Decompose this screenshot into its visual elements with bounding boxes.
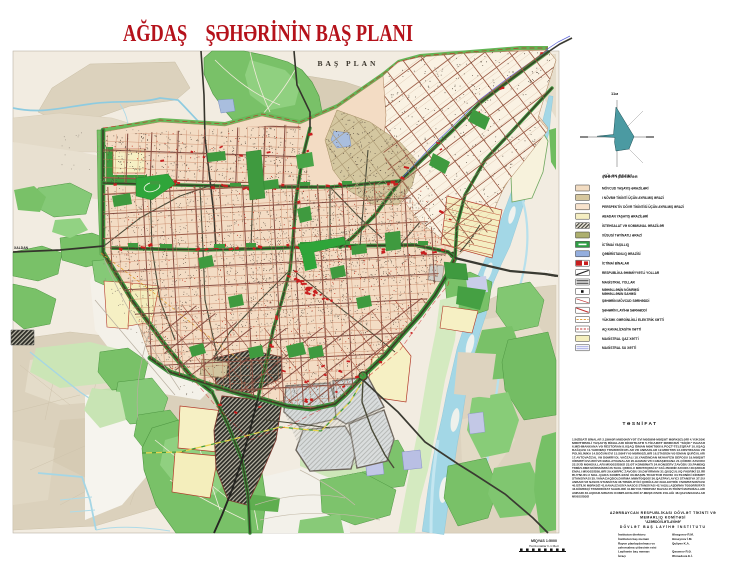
svg-text:QƏBİRİSTANLIQ ƏRAZİSİ: QƏBİRİSTANLIQ ƏRAZİSİ <box>602 252 641 256</box>
svg-text:Layihənin baş memarı: Layihənin baş memarı <box>618 550 650 554</box>
svg-text:ŞƏHƏRİN MÖVCUD SƏRHƏDDİ: ŞƏHƏRİN MÖVCUD SƏRHƏDDİ <box>602 298 649 303</box>
svg-text:MAGİSTRAL YOLLAR: MAGİSTRAL YOLLAR <box>602 280 636 284</box>
svg-text:Horizontallar h-1 Metr: Horizontallar h-1 Metr <box>529 544 559 548</box>
svg-text:AĞDAŞ ŞƏHƏRİNİN BAŞ PLANI: AĞDAŞ ŞƏHƏRİNİN BAŞ PLANI <box>123 20 413 47</box>
svg-text:MEMARLIQ KOMİTƏSİ: MEMARLIQ KOMİTƏSİ <box>640 516 686 520</box>
svg-text:Quliyev K.A.: Quliyev K.A. <box>672 542 690 546</box>
svg-text:Ələsgərov R.M.: Ələsgərov R.M. <box>672 533 694 537</box>
svg-text:MAGİSTRAL SU XƏTTİ: MAGİSTRAL SU XƏTTİ <box>602 346 636 350</box>
svg-text:ŞƏHƏRİN LAYİHƏ SƏRHƏDDİ: ŞƏHƏRİN LAYİHƏ SƏRHƏDDİ <box>602 309 647 313</box>
svg-text:İnstitutun baş memarı: İnstitutun baş memarı <box>618 536 649 541</box>
svg-text:MİQYAS 1:5000: MİQYAS 1:5000 <box>531 539 557 543</box>
svg-text:İCTİMAİ BİNALAR: İCTİMAİ BİNALAR <box>602 262 630 266</box>
svg-text:PERSPEKTİV DÖVR TİKİNTİSİ ÜÇÜN: PERSPEKTİV DÖVR TİKİNTİSİ ÜÇÜN AYRILMIŞ … <box>602 204 684 209</box>
svg-text:İcraçı: İcraçı <box>618 553 626 558</box>
svg-text:I NÖVBƏ TİKİNTİ ÜÇÜN AYRILMIŞ: I NÖVBƏ TİKİNTİ ÜÇÜN AYRILMIŞ ƏRAZİ <box>602 195 664 200</box>
svg-text:MAGİSTRAL QAZ XƏTTİ: MAGİSTRAL QAZ XƏTTİ <box>602 337 639 341</box>
svg-text:XÜSUSİ TƏYİNATLI ƏRAZİ: XÜSUSİ TƏYİNATLI ƏRAZİ <box>602 232 642 237</box>
svg-text:ŞƏRTİ İŞARƏLƏR: ŞƏRTİ İŞARƏLƏR <box>602 175 638 179</box>
svg-text:RESPUBLİKA ƏHƏMİYYƏTLİ YOLLAR: RESPUBLİKA ƏHƏMİYYƏTLİ YOLLAR <box>602 271 660 275</box>
svg-text:İnstitutun direktoru: İnstitutun direktoru <box>618 532 646 537</box>
svg-text:6.MEHMANXANA VƏ RESTORAN 8.UŞ: 6.MEHMANXANA VƏ RESTORAN 8.UŞAQ İDMAN MƏ… <box>572 445 706 449</box>
svg-text:AQ KANALİZASİYA XƏTTİ: AQ KANALİZASİYA XƏTTİ <box>602 327 641 331</box>
svg-text:MƏRTƏBƏLİ YAŞAYIŞ BİNALARI K: MƏRTƏBƏLİ YAŞAYIŞ BİNALARI KİNOTEATR 5.T… <box>572 441 705 445</box>
svg-text:Əhmədova E.İ.: Əhmədova E.İ. <box>672 553 693 558</box>
svg-text:BUYNUZLU MAL-QARA KOMPLEKSİ 3: BUYNUZLU MAL-QARA KOMPLEKSİ 33.MAŞIN-TRA… <box>572 473 705 477</box>
svg-text:"AZƏRDÖVLƏTLAYİHƏ": "AZƏRDÖVLƏTLAYİHƏ" <box>645 519 682 524</box>
svg-text:İSTEHSALAT VƏ KOMMUNAL ƏRAZİLƏ: İSTEHSALAT VƏ KOMMUNAL ƏRAZİLƏR <box>602 224 665 228</box>
svg-text:XALDAN: XALDAN <box>14 246 29 250</box>
svg-text:MƏHƏLLƏNİN SAHƏSİ: MƏHƏLLƏNİN SAHƏSİ <box>602 292 636 296</box>
svg-text:İCTİMAİ YAŞILLIQ: İCTİMAİ YAŞILLIQ <box>602 243 630 247</box>
svg-text:11м: 11м <box>611 91 618 96</box>
svg-text:Hüseynov İ.M.: Hüseynov İ.M. <box>672 536 692 541</box>
svg-text:MÖVCUD YAŞAYIŞ ƏRAZİLƏRİ: MÖVCUD YAŞAYIŞ ƏRAZİLƏRİ <box>602 185 649 190</box>
svg-text:STANSİYASI 35.YANACAQDOLDURMA: STANSİYASI 35.YANACAQDOLDURMA MƏNTƏQƏSİ … <box>572 477 705 481</box>
svg-text:DÖVLƏT BAŞ LAYİHƏ İNSTİTUTU: DÖVLƏT BAŞ LAYİHƏ İNSTİTUTU <box>620 524 706 529</box>
svg-text:ABADAN YAŞAYIŞ ƏRAZİLƏRİ: ABADAN YAŞAYIŞ ƏRAZİLƏRİ <box>602 215 648 219</box>
svg-text:YÜKSƏK GƏRGİNLİKLİ ELEKTRİK XƏ: YÜKSƏK GƏRGİNLİKLİ ELEKTRİK XƏTTİ <box>602 317 664 322</box>
svg-text:TƏSNİFAT: TƏSNİFAT <box>622 420 657 427</box>
svg-text:AZƏRBAYCAN RESPUBLİKASI DÖVLƏT: AZƏRBAYCAN RESPUBLİKASI DÖVLƏT TİKİNTİ V… <box>610 511 716 515</box>
svg-text:YEVLAX: YEVLAX <box>540 269 554 274</box>
svg-text:BAŞ PLAN: BAŞ PLAN <box>318 59 379 68</box>
svg-text:Qasımov R.Ə.: Qasımov R.Ə. <box>672 550 692 554</box>
